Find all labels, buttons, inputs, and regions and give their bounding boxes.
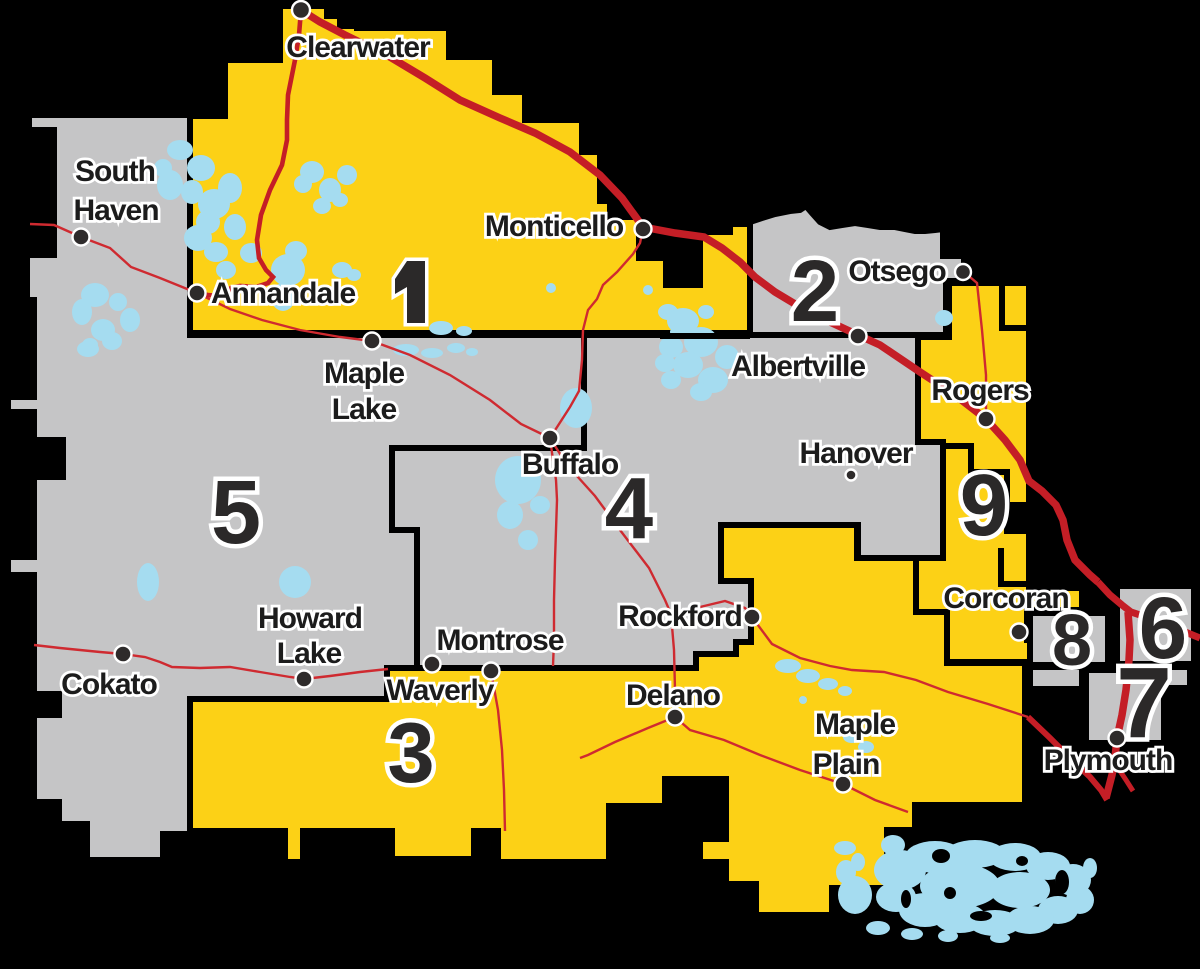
svg-text:Clearwater: Clearwater xyxy=(286,31,431,64)
svg-text:8: 8 xyxy=(1052,601,1092,681)
svg-text:Corcoran: Corcoran xyxy=(943,582,1068,615)
svg-text:Waverly: Waverly xyxy=(387,674,495,707)
svg-text:Montrose: Montrose xyxy=(437,624,564,657)
svg-text:7: 7 xyxy=(1116,647,1172,759)
svg-text:2: 2 xyxy=(791,243,839,340)
svg-text:Monticello: Monticello xyxy=(485,210,624,243)
svg-text:Lake: Lake xyxy=(332,393,397,426)
svg-text:Hanover: Hanover xyxy=(799,437,913,470)
svg-text:Annandale: Annandale xyxy=(211,277,356,310)
svg-text:9: 9 xyxy=(960,457,1008,554)
svg-text:Rogers: Rogers xyxy=(931,374,1029,407)
svg-text:Albertville: Albertville xyxy=(731,350,865,383)
svg-text:Haven: Haven xyxy=(73,194,158,227)
svg-text:Delano: Delano xyxy=(626,679,721,712)
svg-text:Cokato: Cokato xyxy=(61,668,157,701)
svg-text:Rockford: Rockford xyxy=(618,600,742,633)
svg-text:Plain: Plain xyxy=(813,748,880,781)
svg-text:Howard: Howard xyxy=(258,602,362,635)
svg-text:Otsego: Otsego xyxy=(848,255,946,288)
svg-text:Maple: Maple xyxy=(324,357,404,390)
svg-text:Maple: Maple xyxy=(815,708,895,741)
svg-text:3: 3 xyxy=(387,706,434,801)
svg-text:Lake: Lake xyxy=(277,637,342,670)
svg-text:South: South xyxy=(75,155,155,188)
svg-text:4: 4 xyxy=(605,460,653,557)
svg-text:5: 5 xyxy=(211,463,261,563)
